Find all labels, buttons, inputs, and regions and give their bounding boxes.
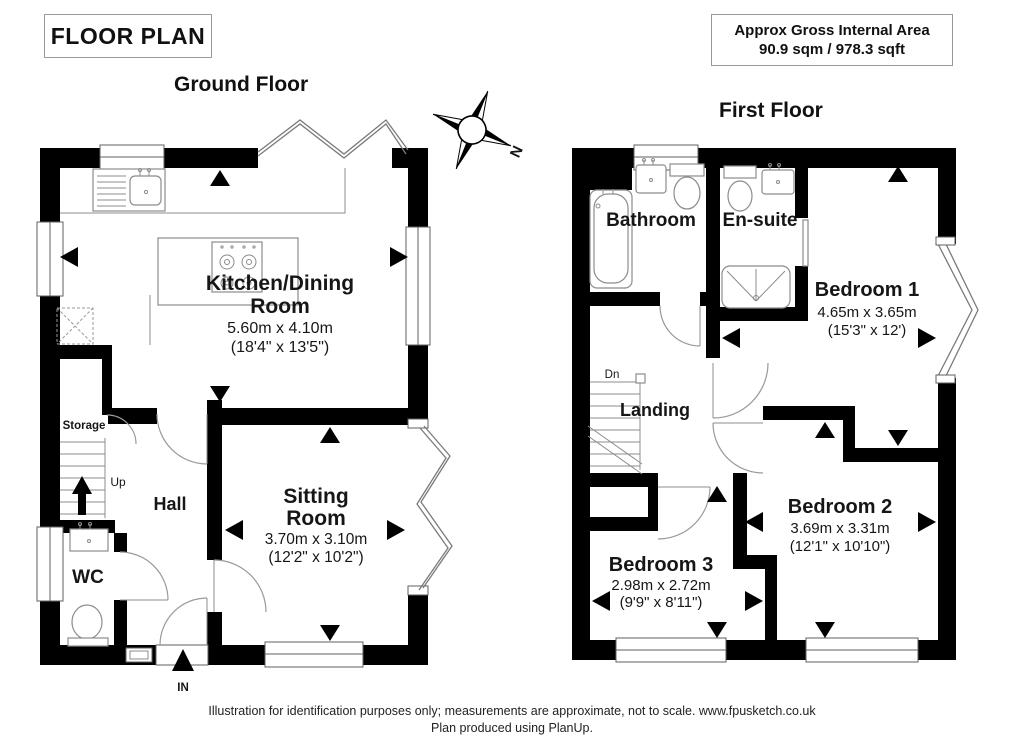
stairs-up-arrow-icon — [72, 476, 92, 494]
kitchen-sink — [93, 168, 165, 211]
sitting-dim-metric: 3.70m x 3.10m — [265, 531, 368, 548]
in-label: IN — [177, 682, 189, 694]
sitting-room-label-2: Room — [286, 507, 346, 530]
footer-disclaimer: Illustration for identification purposes… — [0, 703, 1024, 737]
sitting-room-label: Sitting — [283, 485, 348, 508]
footer-line-2: Plan produced using PlanUp. — [0, 720, 1024, 737]
kitchen-label-2: Room — [250, 295, 310, 318]
ensuite-label: En-suite — [723, 210, 798, 231]
bedroom3-label: Bedroom 3 — [609, 554, 713, 576]
ground-floor-plan: Kitchen/Dining Room 5.60m x 4.10m (18'4"… — [37, 120, 452, 694]
ensuite-toilet — [724, 166, 756, 211]
stairs-up — [60, 438, 105, 518]
bedroom2-label: Bedroom 2 — [788, 496, 892, 518]
ground-floor-windows — [37, 145, 430, 667]
kitchen-dim-metric: 5.60m x 4.10m — [227, 320, 333, 337]
bedroom2-door-arc — [713, 423, 763, 473]
wc-label: WC — [72, 567, 104, 588]
wc-door-arc — [120, 552, 168, 600]
bedroom1-dim-metric: 4.65m x 3.65m — [817, 304, 916, 321]
kitchen-dim-imperial: (18'4" x 13'5") — [231, 339, 329, 356]
stairs-down — [588, 374, 645, 474]
ensuite-sink — [762, 164, 794, 195]
kitchen-door-arc — [157, 414, 207, 464]
bedroom3-door-arc — [658, 487, 710, 539]
bay-window — [936, 237, 978, 383]
bathroom-door-arc — [660, 306, 700, 346]
ensuite-door-leaf — [803, 220, 808, 266]
landing-label: Landing — [620, 400, 690, 420]
entrance-door — [156, 598, 208, 671]
kitchen-fixtures — [57, 168, 345, 345]
shower — [722, 266, 790, 308]
up-label: Up — [110, 475, 126, 489]
bedroom3-dim-imperial: (9'9" x 8'11") — [620, 594, 703, 611]
bedroom1-door-arc — [713, 363, 768, 418]
floor-plan-drawing: Kitchen/Dining Room 5.60m x 4.10m (18'4"… — [0, 0, 1024, 744]
compass-star-icon — [417, 75, 526, 184]
bedroom2-dim-metric: 3.69m x 3.31m — [790, 520, 889, 537]
bedroom3-dim-metric: 2.98m x 2.72m — [611, 577, 710, 594]
storage-label: Storage — [63, 420, 106, 432]
floor-plan-page: FLOOR PLAN Approx Gross Internal Area 90… — [0, 0, 1024, 744]
footer-line-1: Illustration for identification purposes… — [0, 703, 1024, 720]
appliance-space — [57, 308, 93, 344]
bedroom1-dim-imperial: (15'3" x 12') — [828, 322, 907, 339]
bathroom-toilet — [670, 164, 704, 209]
sitting-dim-imperial: (12'2" x 10'2") — [268, 549, 363, 566]
bedroom1-label: Bedroom 1 — [815, 279, 919, 301]
bathroom-label: Bathroom — [606, 210, 696, 231]
compass-rose: N — [417, 75, 526, 184]
bedroom2-dim-imperial: (12'1" x 10'10") — [790, 538, 891, 555]
bathtub — [590, 189, 632, 288]
hall-label: Hall — [153, 494, 186, 514]
sitting-room-door-arc — [214, 560, 266, 612]
dn-label: Dn — [605, 369, 620, 381]
kitchen-label: Kitchen/Dining — [206, 272, 354, 295]
first-floor-plan: Bathroom En-suite Bedroom 1 4.65m x 3.65… — [572, 145, 978, 662]
wc-toilet — [72, 605, 102, 639]
